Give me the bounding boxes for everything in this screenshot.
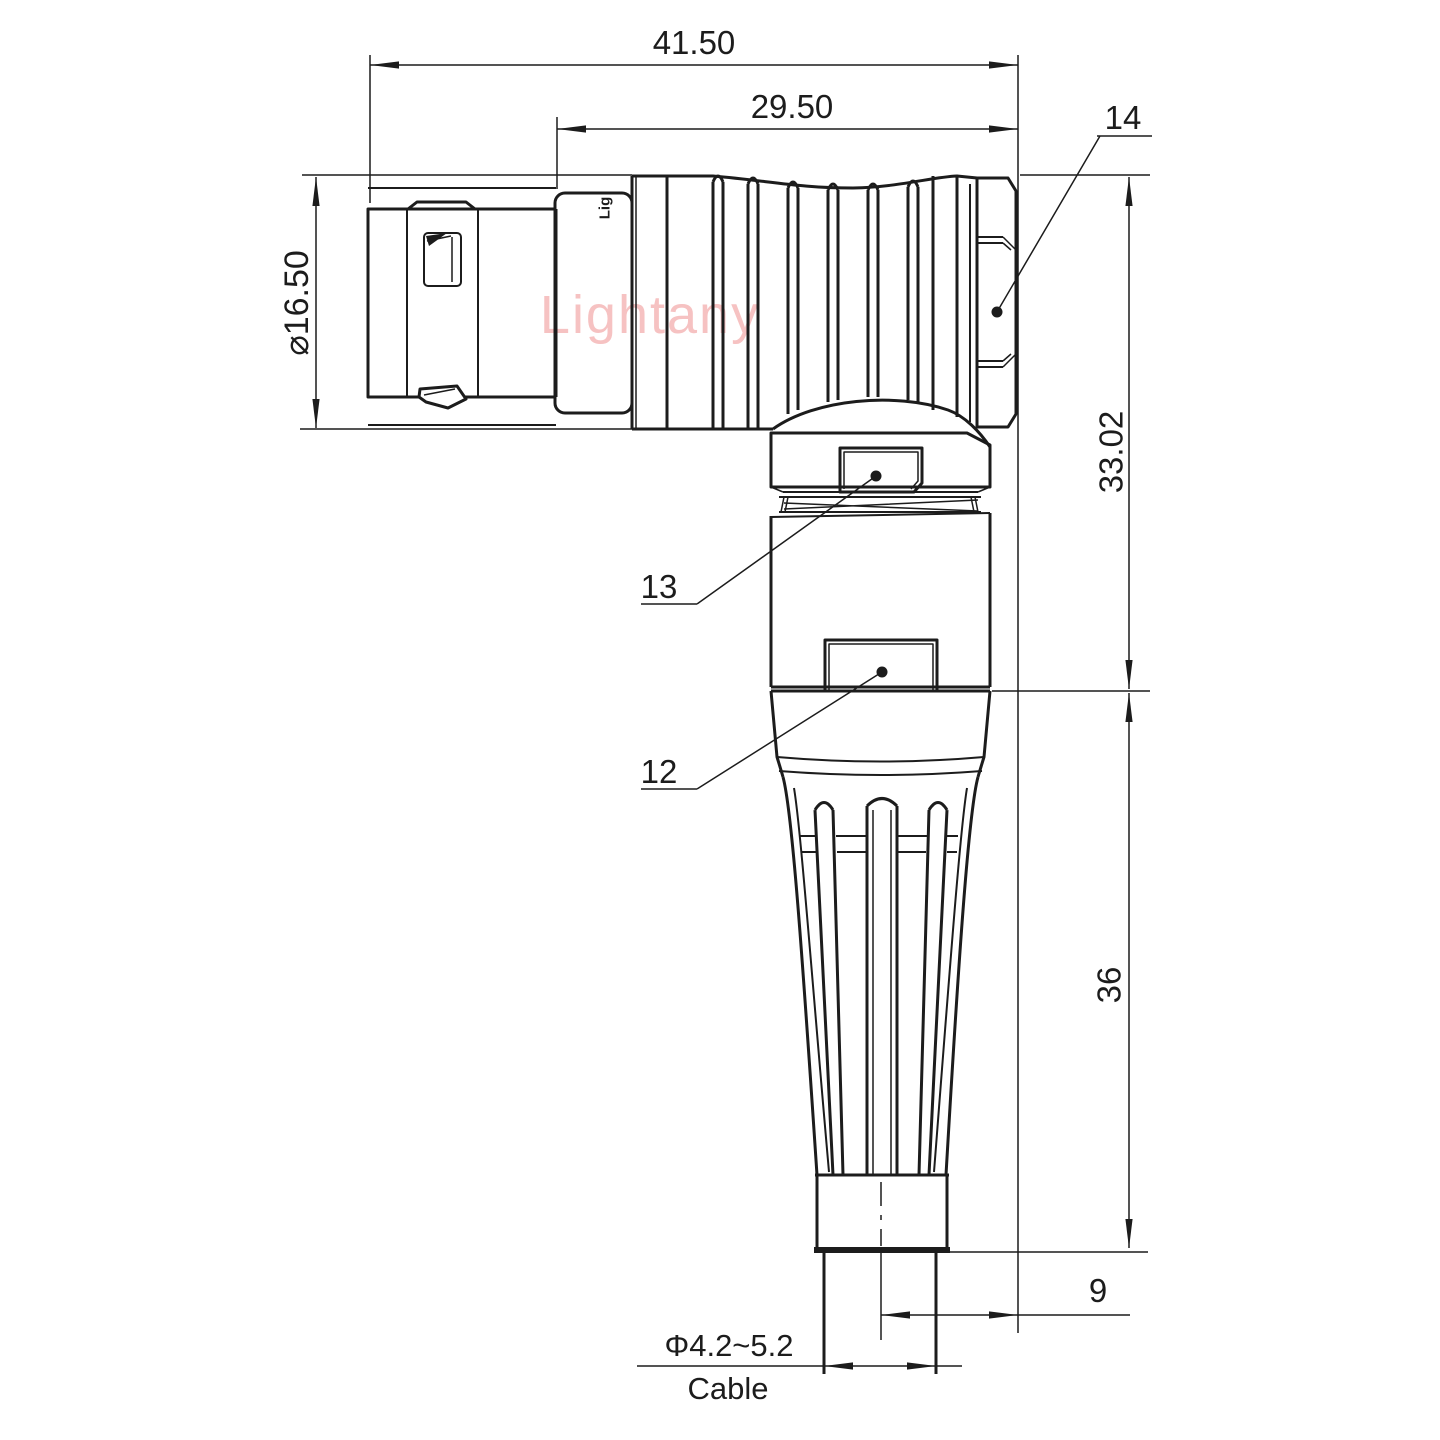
dim-shell-diameter-label: ⌀16.50: [278, 250, 316, 356]
dim-overall-length-label: 41.50: [653, 24, 736, 61]
part-ref-14-label: 14: [1105, 99, 1142, 136]
leader-13: 13: [641, 476, 876, 605]
technical-drawing-page: Lightany Lig: [0, 0, 1440, 1440]
dim-elbow-height-upper-label: 33.02: [1093, 411, 1130, 494]
dim-cable-diameter-label: Φ4.2~5.2: [664, 1328, 793, 1363]
part-ref-12-label: 12: [641, 753, 678, 790]
dimension-cable-diameter: Φ4.2~5.2 Cable: [637, 1328, 962, 1406]
housing-plate: [825, 640, 937, 691]
leader-dot-14: [992, 307, 1003, 318]
elbow-assembly: [771, 433, 990, 1374]
collar-plate: [840, 448, 922, 492]
backshell-band: [771, 691, 990, 777]
brand-mark-text: Lig: [596, 197, 613, 220]
barrel: [368, 188, 556, 425]
part-ref-13-label: 13: [641, 568, 678, 605]
dimension-rear-length: 29.50: [557, 88, 1018, 189]
transition-ring: [779, 497, 981, 512]
elbow-collar: [771, 433, 990, 492]
watermark-text: Lightany: [540, 285, 760, 345]
dim-cable-offset-label: 9: [1089, 1272, 1107, 1309]
latch-bump: [408, 202, 475, 209]
bayonet-slot: [424, 233, 461, 286]
cable-label: Cable: [688, 1371, 769, 1406]
dimension-cable-offset: 9: [881, 1272, 1130, 1315]
key-tab: [419, 386, 466, 408]
technical-drawing-canvas: Lightany Lig: [0, 0, 1440, 1440]
housing-body: [771, 513, 990, 691]
cable-bushing: [814, 1175, 950, 1250]
dim-elbow-height-lower-label: 36: [1091, 967, 1128, 1004]
strain-relief: [783, 777, 978, 1175]
dimension-elbow-height-lower: 36: [950, 693, 1148, 1252]
cable: [824, 1252, 936, 1374]
dim-rear-length-label: 29.50: [751, 88, 834, 125]
hex-nut: [977, 178, 1016, 427]
